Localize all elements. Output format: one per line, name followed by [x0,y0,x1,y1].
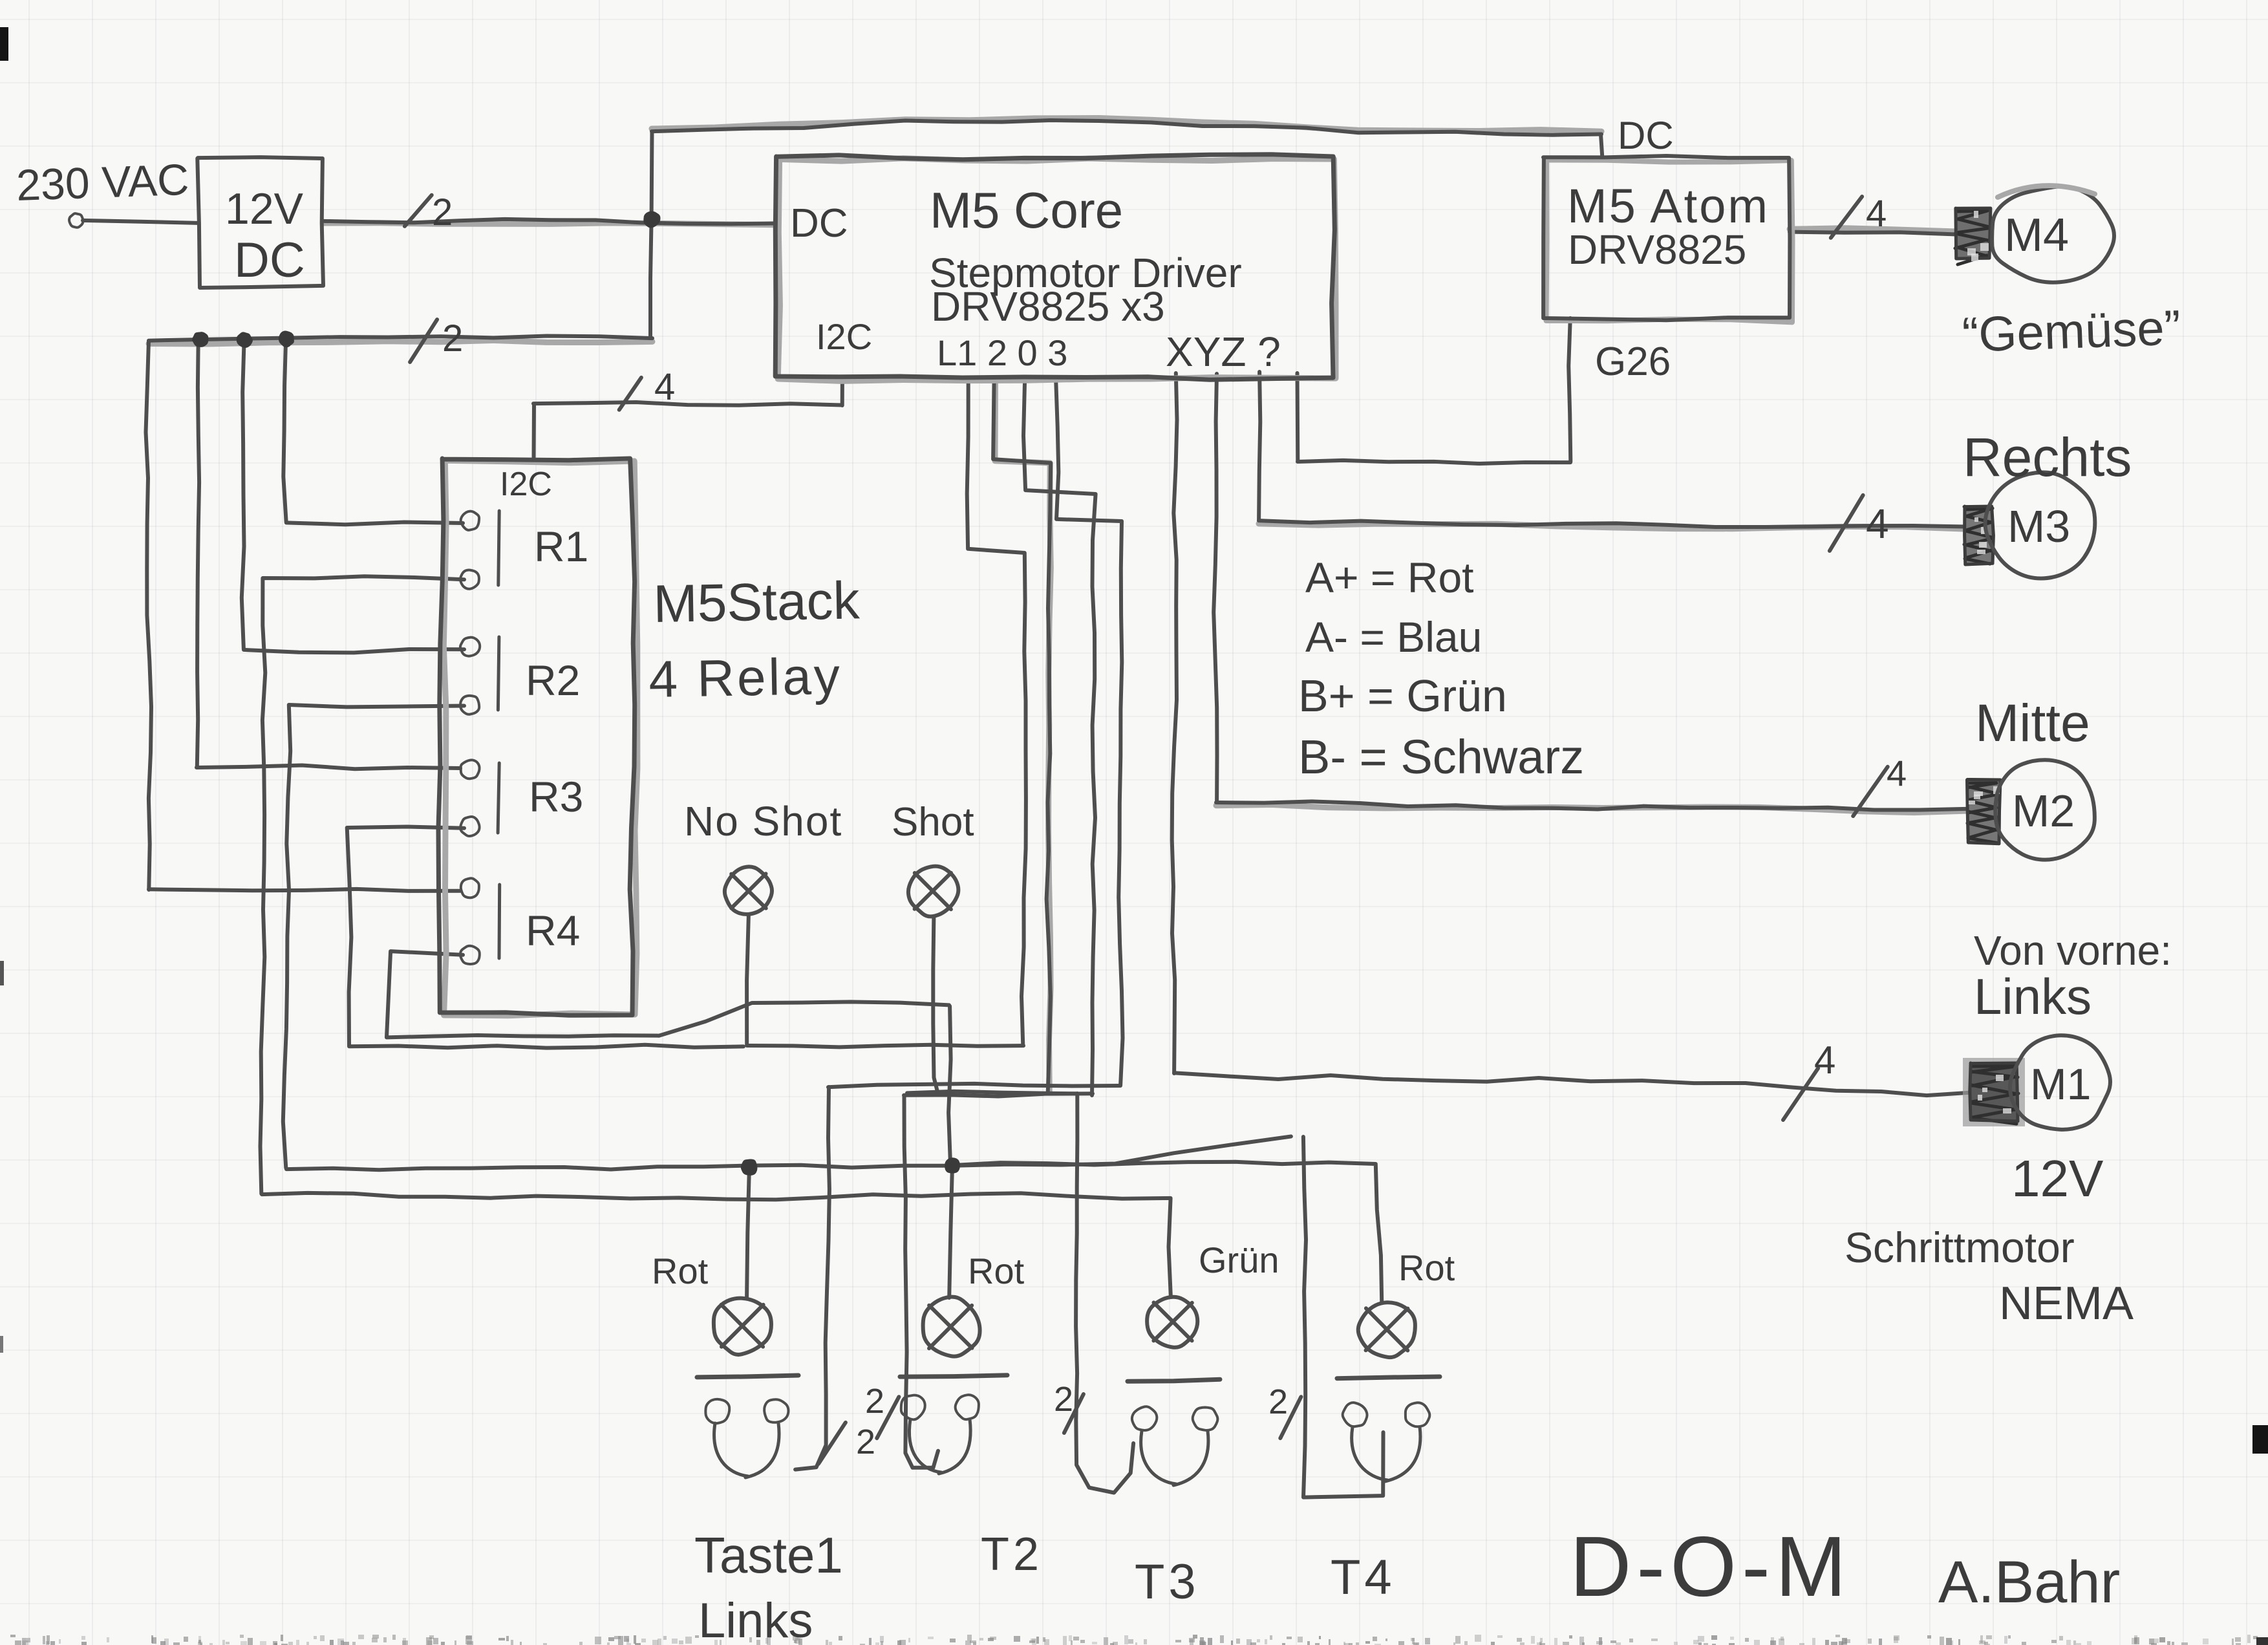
svg-text:4 Relay: 4 Relay [648,647,843,708]
svg-text:2: 2 [1268,1382,1288,1421]
svg-text:Links: Links [698,1593,813,1645]
svg-text:Mitte: Mitte [1975,694,2090,753]
svg-text:4: 4 [1866,500,1889,547]
svg-text:4: 4 [1866,193,1887,235]
svg-text:DC: DC [790,201,848,246]
svg-text:B+ = Grün: B+ = Grün [1298,671,1507,721]
svg-text:B- = Schwarz: B- = Schwarz [1298,730,1584,784]
svg-text:DC: DC [1618,114,1674,157]
svg-text:M5 Atom: M5 Atom [1567,179,1770,233]
svg-text:R3: R3 [529,773,583,821]
svg-text:XYZ ?: XYZ ? [1166,328,1281,375]
svg-text:A- = Blau: A- = Blau [1305,613,1482,661]
svg-text:4: 4 [1814,1038,1835,1082]
svg-text:No Shot: No Shot [684,798,842,844]
svg-text:T3: T3 [1135,1554,1200,1609]
svg-text:2: 2 [856,1423,875,1461]
svg-text:Schrittmotor: Schrittmotor [1845,1223,2075,1271]
svg-text:M2: M2 [2012,786,2075,836]
svg-text:Rechts: Rechts [1963,427,2132,488]
svg-text:2: 2 [432,191,453,233]
svg-text:Rot: Rot [968,1251,1025,1291]
svg-text:T2: T2 [981,1529,1043,1580]
svg-text:I2C: I2C [500,466,552,503]
svg-text:M5 Core: M5 Core [930,182,1123,239]
svg-text:R4: R4 [526,907,580,954]
svg-text:M5Stack: M5Stack [653,571,861,634]
svg-text:Links: Links [1974,968,2091,1025]
svg-text:T4: T4 [1331,1550,1396,1605]
svg-text:12V: 12V [2011,1150,2104,1207]
svg-text:DC: DC [234,233,305,288]
svg-text:A.Bahr: A.Bahr [1938,1549,2120,1615]
svg-text:Rot: Rot [652,1251,709,1291]
svg-text:D-O-M: D-O-M [1570,1519,1852,1614]
svg-text:Grün: Grün [1199,1240,1279,1280]
svg-text:230 VAC: 230 VAC [16,155,190,210]
svg-text:2: 2 [442,317,463,360]
svg-text:2: 2 [865,1382,884,1421]
svg-text:I2C: I2C [816,316,872,357]
svg-text:12V: 12V [225,184,304,233]
svg-text:DRV8825 x3: DRV8825 x3 [931,283,1165,330]
svg-text:4: 4 [1887,753,1907,793]
svg-text:L1 2 0 3: L1 2 0 3 [937,332,1067,373]
svg-text:Taste1: Taste1 [694,1527,843,1584]
svg-text:A+ = Rot: A+ = Rot [1305,554,1474,601]
svg-text:M3: M3 [2007,501,2070,552]
svg-text:R2: R2 [526,656,580,704]
svg-text:G26: G26 [1595,339,1671,384]
svg-text:DRV8825: DRV8825 [1568,226,1746,273]
svg-text:2: 2 [1054,1380,1073,1419]
svg-text:Rot: Rot [1398,1247,1455,1288]
svg-text:M4: M4 [2004,210,2069,261]
svg-text:4: 4 [654,366,675,408]
svg-text:R1: R1 [534,522,588,570]
svg-text:NEMA: NEMA [1999,1278,2134,1329]
svg-text:M1: M1 [2030,1060,2091,1109]
svg-text:“Gemüse”: “Gemüse” [1962,300,2182,363]
svg-text:Shot: Shot [892,800,974,844]
svg-text:Von vorne:: Von vorne: [1974,927,2172,974]
